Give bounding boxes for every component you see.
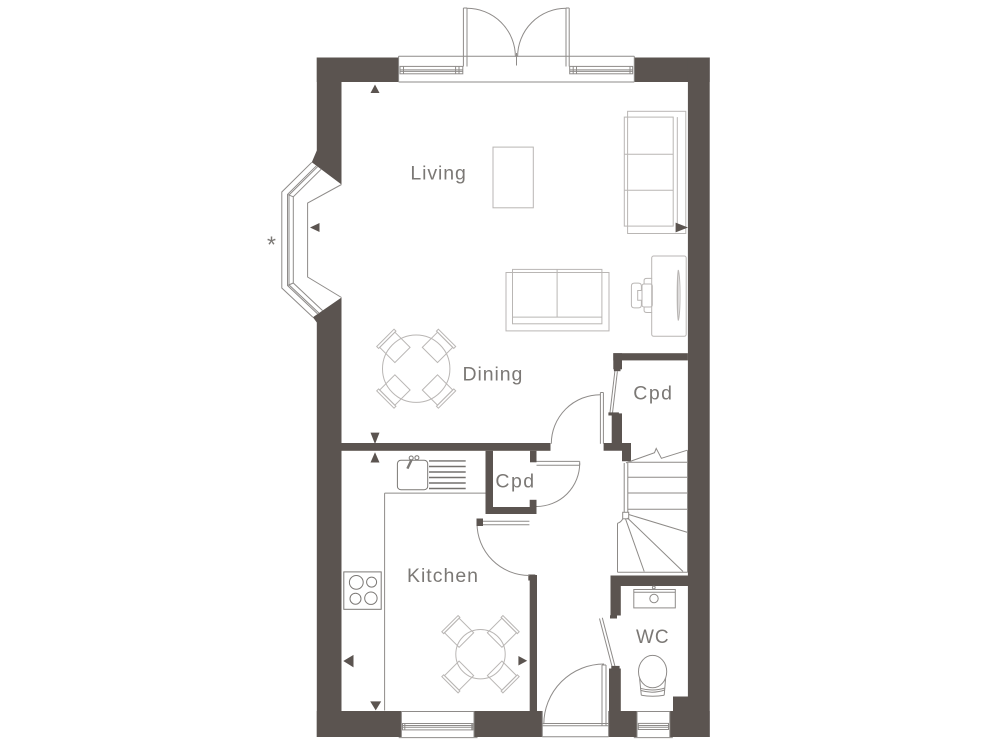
svg-text:Kitchen: Kitchen bbox=[407, 565, 479, 587]
svg-text:WC: WC bbox=[636, 627, 670, 648]
svg-text:Living: Living bbox=[410, 163, 466, 185]
svg-text:*: * bbox=[267, 232, 276, 258]
svg-text:Cpd: Cpd bbox=[495, 471, 535, 493]
svg-text:Cpd: Cpd bbox=[633, 383, 673, 405]
svg-text:Dining: Dining bbox=[463, 364, 524, 386]
